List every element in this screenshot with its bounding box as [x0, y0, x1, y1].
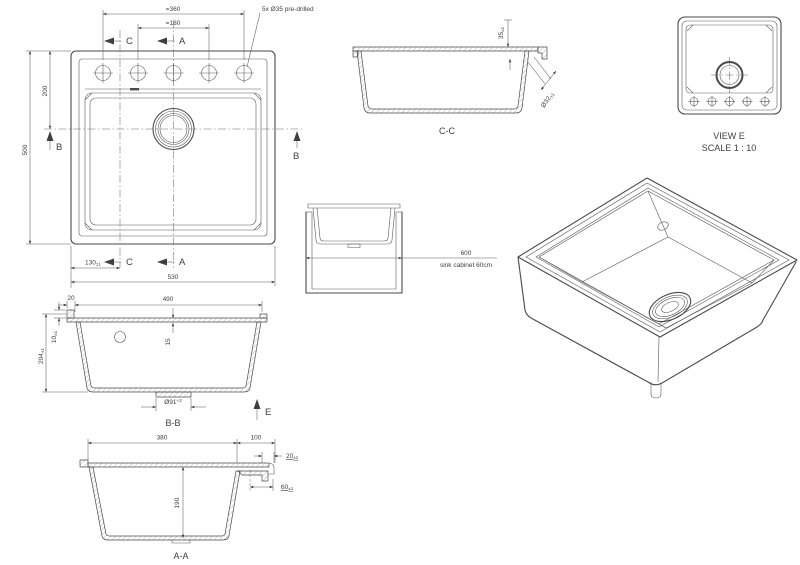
dim-inner-width-490: 490	[163, 296, 174, 303]
drain-boss	[156, 392, 191, 397]
section-label-b-left: B	[56, 142, 62, 153]
section-label-a-top: A	[179, 36, 186, 47]
section-label-a-bottom: A	[179, 257, 186, 268]
tap-ledge	[238, 471, 268, 481]
dim-step-20: 20±1	[286, 453, 299, 460]
cabinet-view: 600 sink cabinet 60cm	[306, 204, 497, 293]
dim-depth-190: 190	[174, 497, 181, 508]
section-bb-label: B-B	[165, 418, 180, 428]
dim-bowl-width-380: 380	[157, 435, 168, 442]
section-aa-view: 380 100 20±1 60±1 190 A-A	[80, 435, 299, 562]
section-label-c-top: C	[126, 36, 133, 47]
dim-deck-width-100: 100	[251, 435, 262, 442]
holes-note: 5x Ø35 pre-drilled	[262, 6, 314, 13]
dim-width-530: 530	[168, 274, 179, 281]
dim-ledge-60: 60±1	[281, 484, 294, 491]
view-e-holes	[689, 96, 771, 107]
dim-edge-15: 15	[165, 338, 172, 346]
dim-hole-span-180: =180	[166, 20, 181, 27]
dim-height-500: 500	[22, 144, 29, 155]
section-aa-label: A-A	[173, 551, 188, 561]
view-e-title: VIEW E	[713, 131, 745, 141]
isometric-view	[518, 178, 797, 398]
overflow-hole	[115, 332, 126, 343]
datum-mark	[130, 88, 139, 90]
view-e-arrow-label: E	[265, 407, 271, 418]
view-e: VIEW E SCALE 1 : 10	[678, 17, 781, 153]
dim-deck-drop-35: 35±1	[498, 26, 505, 39]
cabinet-drain-stub	[348, 244, 360, 248]
section-cc-label: C-C	[439, 126, 455, 136]
dim-hole-span-360: =360	[166, 6, 181, 13]
dim-lip-20: 20	[67, 295, 75, 302]
dim-drain-91: Ø91+2	[164, 398, 182, 406]
dim-c-offset-130: 130±1	[85, 260, 101, 267]
view-e-arrow: E	[254, 399, 272, 420]
tap-deck-hook	[538, 47, 547, 59]
cabinet-caption: sink cabinet 60cm	[440, 262, 492, 269]
dim-depth-204: 204±1	[38, 348, 45, 364]
sink-technical-drawing: =360 =180 5x Ø35 pre-drilled C A C A B B	[0, 0, 800, 565]
view-e-drain	[711, 57, 748, 93]
dim-hole-row-200: 200	[42, 85, 49, 96]
section-label-b-right: B	[293, 151, 299, 162]
technical-drawing-page: =360 =180 5x Ø35 pre-drilled C A C A B B	[0, 0, 800, 565]
plan-view: =360 =180 5x Ø35 pre-drilled C A C A B B	[22, 6, 314, 288]
section-label-c-bottom: C	[126, 257, 133, 268]
dim-cabinet-600: 600	[461, 250, 472, 257]
view-e-scale: SCALE 1 : 10	[702, 143, 757, 153]
dim-tap-hole-32: Ø32±1	[540, 91, 556, 110]
section-bb-view: 20 490 10±1 204±1 15 Ø91+2 B-B E	[38, 295, 271, 428]
section-cc-view: 35±1 Ø32±1 C-C	[353, 20, 556, 136]
dim-rim-10: 10±1	[51, 330, 58, 343]
